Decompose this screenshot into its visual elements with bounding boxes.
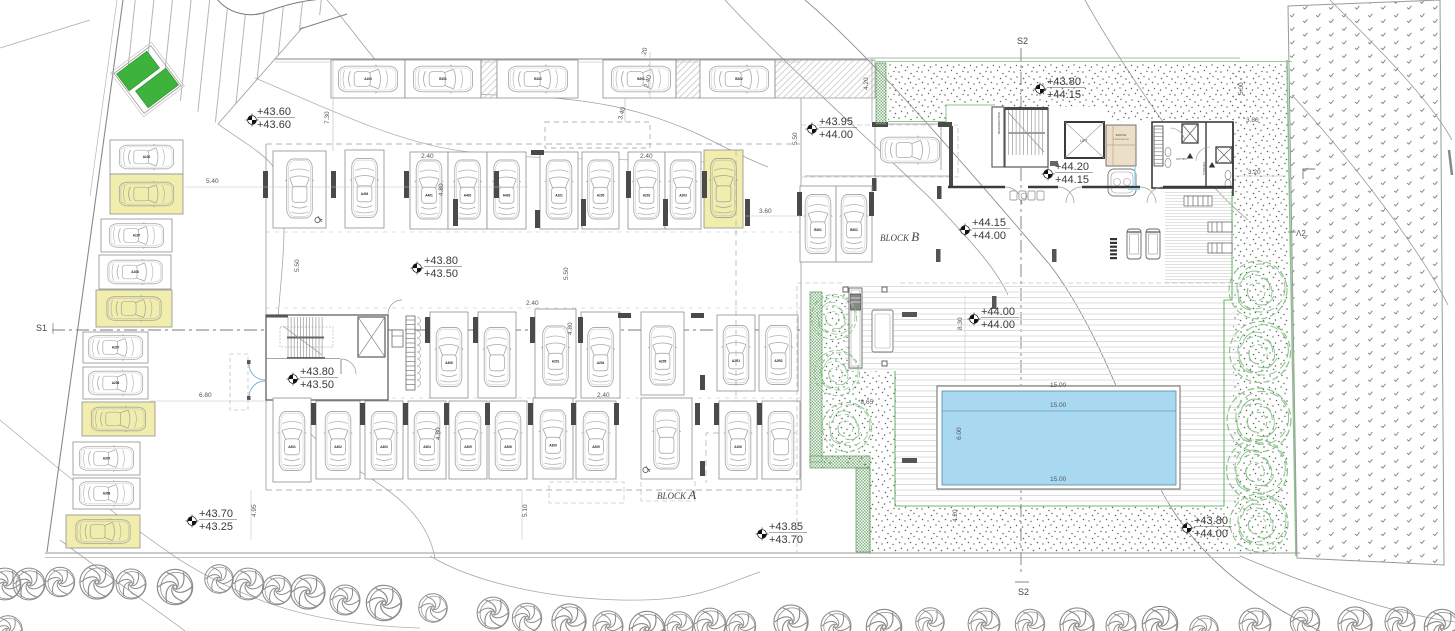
svg-text:A401: A401: [425, 194, 433, 198]
svg-text:ΣΑΟΥΝΑ: ΣΑΟΥΝΑ: [1116, 133, 1127, 137]
svg-text:4.80: 4.80: [435, 427, 442, 440]
svg-text:A205: A205: [659, 360, 667, 364]
svg-text:4.20: 4.20: [863, 77, 870, 90]
svg-text:*8.65: *8.65: [858, 399, 874, 406]
svg-text:A101: A101: [555, 194, 563, 198]
svg-text:A309: A309: [549, 444, 557, 448]
svg-text:15.00: 15.00: [1050, 382, 1067, 389]
svg-text:A106: A106: [734, 445, 742, 449]
svg-text:+44.00: +44.00: [972, 230, 1006, 242]
svg-text:ΛΟΥΤΡΟ: ΛΟΥΤΡΟ: [1176, 157, 1187, 161]
svg-text:2.40: 2.40: [421, 153, 434, 160]
svg-text:+44.15: +44.15: [1055, 174, 1089, 186]
svg-text:A303: A303: [380, 445, 388, 449]
svg-text:+43.80: +43.80: [1194, 515, 1228, 527]
svg-text:+43.25: +43.25: [199, 521, 233, 533]
svg-text:A404: A404: [361, 192, 369, 196]
svg-text:A208: A208: [112, 381, 120, 385]
svg-text:2.40: 2.40: [597, 392, 610, 399]
svg-text:6.00: 6.00: [956, 427, 963, 440]
svg-text:S1: S1: [36, 323, 47, 333]
svg-text:+43.70: +43.70: [199, 508, 233, 520]
svg-text:6.80: 6.80: [199, 392, 212, 399]
svg-text:15.00: 15.00: [1050, 402, 1067, 409]
svg-text:A108: A108: [131, 270, 139, 274]
svg-text:5.50: 5.50: [792, 132, 799, 145]
svg-text:A103: A103: [364, 77, 372, 81]
svg-text:A402: A402: [464, 194, 472, 198]
svg-text:2.40: 2.40: [640, 153, 653, 160]
svg-text:A203: A203: [679, 194, 687, 198]
svg-text:A202: A202: [643, 194, 651, 198]
svg-text:+43.80: +43.80: [300, 366, 334, 378]
svg-text:Λ2: Λ2: [1296, 229, 1306, 238]
svg-text:4.80: 4.80: [567, 322, 574, 335]
svg-text:+44.20: +44.20: [1055, 161, 1089, 173]
svg-text:A204: A204: [597, 361, 605, 365]
svg-text:+44.00: +44.00: [981, 306, 1015, 318]
svg-text:+43.80: +43.80: [1047, 76, 1081, 88]
svg-text:+44.15: +44.15: [1047, 89, 1081, 101]
svg-text:2.40: 2.40: [526, 300, 539, 307]
svg-text:A207: A207: [112, 346, 120, 350]
svg-text:A301: A301: [288, 445, 296, 449]
svg-text:A306: A306: [504, 445, 512, 449]
svg-text:A406: A406: [445, 361, 453, 365]
svg-text:+43.80: +43.80: [424, 255, 458, 267]
svg-text:B301: B301: [814, 228, 822, 232]
svg-text:1.80Χ2.00Χ2.00: 1.80Χ2.00Χ2.00: [1113, 139, 1129, 141]
svg-text:S2: S2: [1017, 36, 1028, 46]
svg-text:4.20: 4.20: [952, 509, 959, 522]
svg-text:4.80: 4.80: [438, 183, 445, 196]
svg-text:A307: A307: [103, 457, 111, 461]
svg-text:A308: A308: [103, 492, 111, 496]
svg-text:A2R2: A2R2: [774, 359, 782, 363]
svg-text:5.10: 5.10: [522, 504, 529, 517]
svg-text:A102: A102: [143, 155, 151, 159]
svg-text:A201: A201: [552, 360, 560, 364]
svg-text:8.30: 8.30: [957, 317, 964, 330]
svg-text:A302: A302: [334, 445, 342, 449]
svg-text:+43.85: +43.85: [769, 521, 803, 533]
svg-text:4.95: 4.95: [251, 504, 258, 517]
svg-text:+44.00: +44.00: [819, 129, 853, 141]
svg-text:A304: A304: [423, 445, 431, 449]
svg-text:A305: A305: [464, 445, 472, 449]
svg-text:A107: A107: [133, 234, 141, 238]
svg-text:5.50: 5.50: [563, 267, 570, 280]
svg-text:A105: A105: [597, 194, 605, 198]
svg-text:3.60: 3.60: [759, 208, 772, 215]
svg-text:5.40: 5.40: [206, 178, 219, 185]
svg-text:+43.95: +43.95: [819, 116, 853, 128]
svg-text:3.20: 3.20: [1248, 169, 1261, 176]
svg-text:ΓΥΜΝΑΣΙΟ: ΓΥΜΝΑΣΙΟ: [1202, 162, 1206, 175]
svg-text:5.00: 5.00: [1238, 82, 1245, 95]
svg-text:+43.60: +43.60: [257, 119, 291, 131]
svg-text:A209: A209: [592, 445, 600, 449]
svg-text:+43.50: +43.50: [424, 268, 458, 280]
svg-text:B302: B302: [850, 228, 858, 232]
svg-text:3.80: 3.80: [1246, 117, 1259, 124]
svg-text:B202: B202: [735, 77, 743, 81]
svg-text:+43.50: +43.50: [300, 379, 334, 391]
svg-text:15.00: 15.00: [1050, 476, 1067, 483]
svg-text:MHXANOΣTAΣIO: MHXANOΣTAΣIO: [997, 111, 1001, 134]
svg-text:S2: S2: [1018, 587, 1029, 597]
svg-text:+43.60: +43.60: [257, 106, 291, 118]
svg-text:+43.70: +43.70: [769, 534, 803, 546]
svg-text:B101: B101: [439, 77, 447, 81]
svg-text:5.50: 5.50: [294, 259, 301, 272]
svg-text:A403: A403: [503, 194, 511, 198]
svg-text:+44.00: +44.00: [1194, 528, 1228, 540]
svg-text:+44.15: +44.15: [972, 217, 1006, 229]
svg-text:B102: B102: [534, 77, 542, 81]
svg-text:+44.00: +44.00: [981, 319, 1015, 331]
svg-text:LIFT: LIFT: [1080, 139, 1088, 143]
svg-text:7.30: 7.30: [324, 111, 331, 124]
